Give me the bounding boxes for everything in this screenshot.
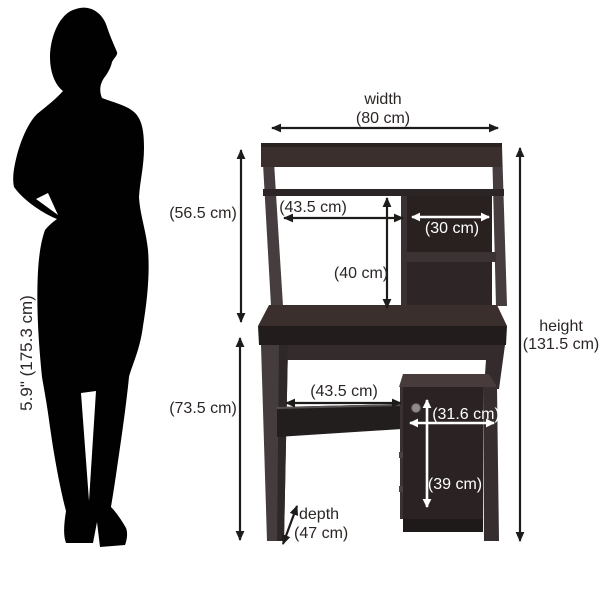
cabinet-width-value: (31.6 cm)	[432, 406, 500, 423]
cabinet-top	[399, 374, 497, 387]
width-value: (80 cm)	[356, 110, 410, 127]
product-dimension-diagram: width (80 cm) height (131.5 cm) (56.5 cm…	[0, 0, 600, 600]
hutch-opening-width-value: (43.5 cm)	[279, 199, 347, 216]
hutch-top-rail-edge	[261, 143, 502, 147]
hutch-unit-left-wall	[401, 196, 407, 306]
cabinet-hinge-top	[399, 452, 403, 458]
depth-label: depth	[299, 506, 339, 523]
height-value: (131.5 cm)	[523, 336, 599, 353]
hutch-shelf-width-value: (30 cm)	[425, 220, 479, 237]
person-silhouette	[13, 8, 148, 547]
base-height-value: (73.5 cm)	[169, 400, 237, 417]
height-label: height	[539, 318, 583, 335]
hutch-shelf-board	[263, 189, 504, 196]
base-opening-width-value: (43.5 cm)	[310, 383, 378, 400]
cabinet-knob	[412, 404, 421, 413]
hutch-left-post	[262, 146, 283, 306]
hutch-opening-height-value: (40 cm)	[334, 265, 388, 282]
cabinet-height-value: (39 cm)	[428, 476, 482, 493]
hutch-unit-bottom-compartment	[407, 262, 492, 306]
hutch-right-post	[492, 146, 507, 306]
desk-lower-shelf	[277, 404, 402, 437]
person-height-label: 5.9" (175.3 cm)	[17, 295, 36, 411]
depth-value: (47 cm)	[294, 525, 348, 542]
cabinet-hinge-bottom	[399, 486, 403, 492]
hutch-height-value: (56.5 cm)	[169, 205, 237, 222]
cabinet-base	[403, 519, 483, 532]
desk-top-surface	[258, 305, 507, 326]
hutch-unit-middle-shelf	[401, 252, 496, 262]
width-label: width	[363, 91, 401, 108]
desk-top-front-edge	[258, 326, 507, 345]
diagram-canvas: width (80 cm) height (131.5 cm) (56.5 cm…	[0, 0, 600, 600]
desk-apron	[273, 345, 492, 360]
